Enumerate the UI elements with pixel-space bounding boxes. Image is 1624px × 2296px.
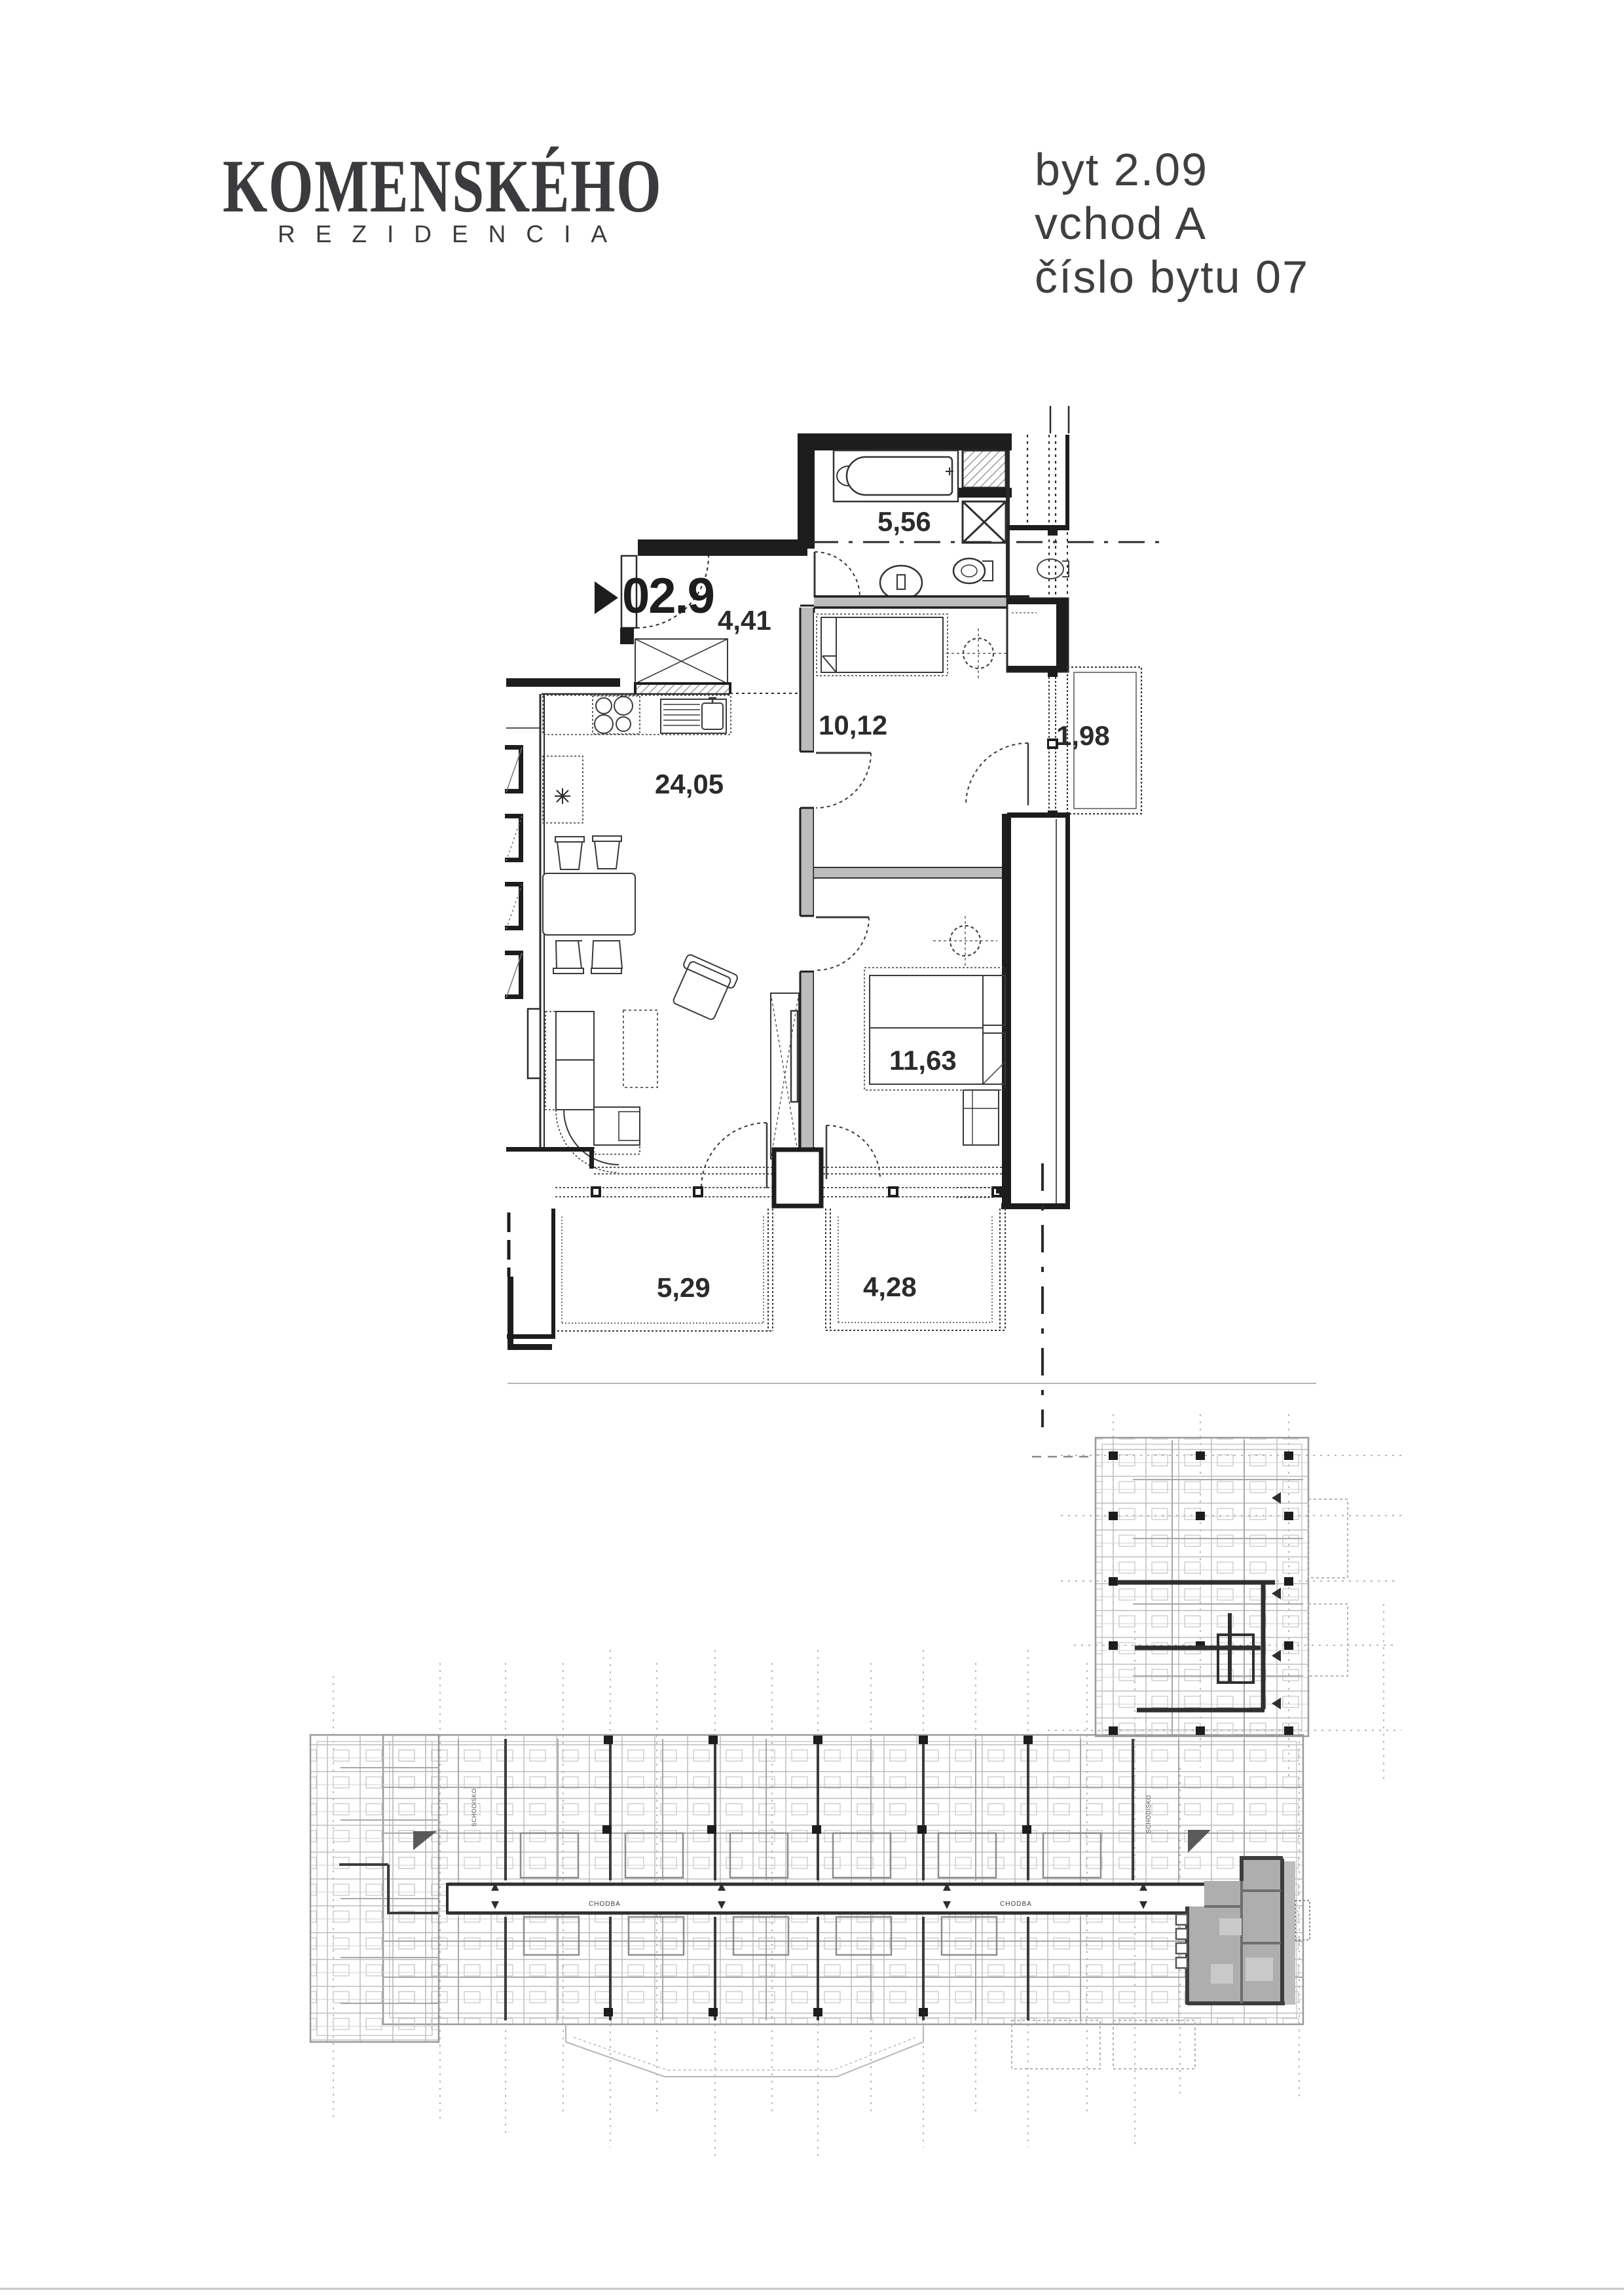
svg-text:SCHODISKO: SCHODISKO — [471, 1788, 477, 1827]
svg-text:10,12: 10,12 — [819, 710, 887, 740]
svg-text:CHODBA: CHODBA — [589, 1901, 621, 1908]
svg-text:SCHODISKO: SCHODISKO — [1145, 1795, 1152, 1833]
svg-text:4,28: 4,28 — [863, 1271, 917, 1302]
svg-text:4,41: 4,41 — [718, 605, 771, 636]
svg-text:02.9: 02.9 — [622, 568, 714, 624]
svg-text:5,29: 5,29 — [657, 1272, 710, 1303]
svg-text:11,63: 11,63 — [889, 1045, 957, 1076]
svg-text:1,98: 1,98 — [1056, 720, 1110, 751]
svg-text:24,05: 24,05 — [655, 769, 724, 799]
svg-text:CHODBA: CHODBA — [1000, 1901, 1032, 1908]
svg-text:5,56: 5,56 — [877, 506, 931, 537]
